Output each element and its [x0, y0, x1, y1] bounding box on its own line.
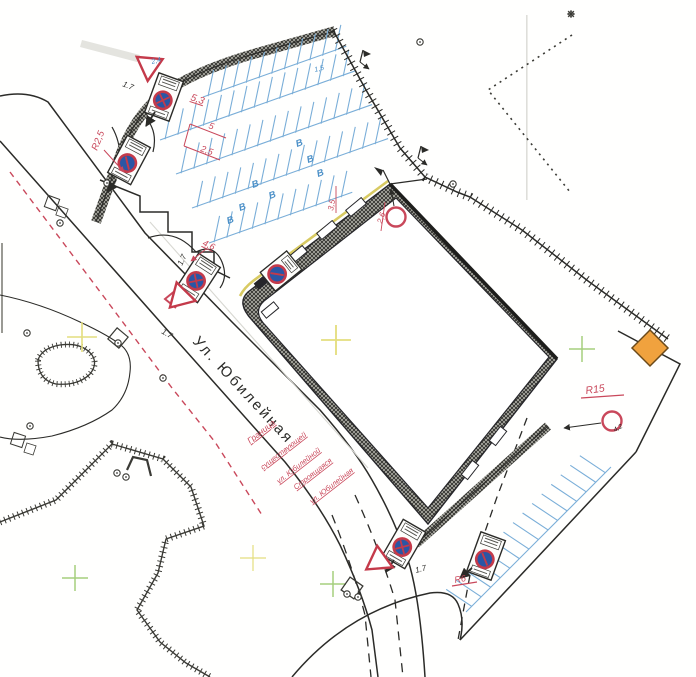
terrain-southwest — [0, 295, 210, 677]
site-plan-scan: В В В В В В В — [0, 0, 696, 677]
green-area-outline — [0, 295, 130, 439]
accessible-stall-label: В — [225, 214, 235, 227]
sign-assembly-6 — [467, 532, 506, 580]
site-plan-canvas: В В В В В В В — [0, 0, 696, 677]
red-boundary — [10, 172, 262, 515]
dotted-parcel-corner — [488, 35, 572, 192]
dimension-5-3: 5,3 — [189, 92, 206, 107]
dimension-1-7: 1.7 — [121, 80, 135, 93]
accessible-stall-label: В — [237, 201, 247, 214]
dimension-1-7: 1.7 — [160, 327, 175, 341]
terrain-bracket-mark — [127, 457, 151, 476]
dimension-1-7: 1.7 — [176, 252, 189, 266]
sign-assembly-1 — [145, 73, 184, 121]
dimension-1-7: 1.7 — [414, 563, 428, 575]
accessible-stall-label: В — [315, 167, 325, 180]
terrain-toothed-line — [0, 444, 210, 677]
dimension-4-2: 4,2 — [613, 423, 625, 434]
dimension-2-5: 2,5 — [198, 143, 215, 157]
radius-annotation-r6: R6 — [454, 573, 467, 585]
radius-annotation-r15: R15 — [585, 382, 606, 397]
accessible-stall-labels: В В В В В В В — [225, 137, 325, 227]
radius-annotation-r25: R2,5 — [90, 129, 108, 152]
accessible-stall-label: В — [294, 137, 304, 150]
accessible-stall-label: В — [267, 189, 277, 202]
red-dashed-line — [10, 172, 262, 515]
star-symbol-icon — [567, 10, 575, 18]
dimension-1-5: 1,5 — [314, 65, 325, 74]
building-corner-tie-line — [390, 179, 427, 184]
